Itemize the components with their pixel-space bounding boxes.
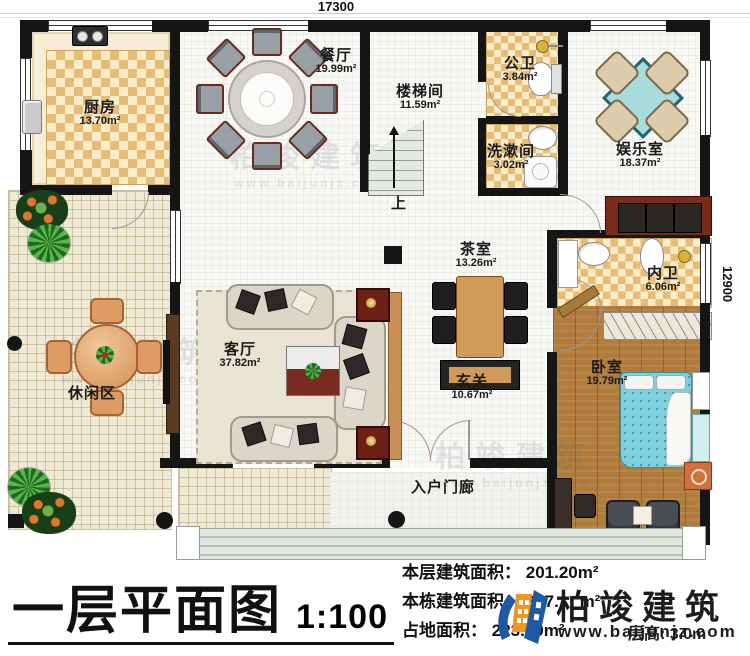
title-scale: 1:100 [296,598,388,636]
window [700,60,711,137]
patio-chair-icon [90,390,124,416]
couch-cushion [646,203,674,233]
fixture-line [547,45,563,47]
dimension-line [0,13,750,14]
couch [605,196,712,236]
column-dot [388,511,405,528]
bed-blanket [666,392,691,466]
wall [478,188,568,196]
wall [486,116,560,124]
desk-chair-icon [574,494,596,518]
tea-chair-icon [432,282,456,310]
porch-post [176,526,200,560]
tv-icon [163,340,170,404]
wall [152,20,208,32]
dining-chair-icon [252,28,282,56]
bed-pillow [624,375,654,390]
dimension-line [0,17,750,18]
title-underline [8,642,394,645]
stat-label: 占地面积： [402,621,487,640]
patio-chair-icon [46,340,72,374]
corner-cabinet [356,288,390,322]
sofa-pillow [342,386,366,410]
logo-website: www.baijunjz.com [558,622,737,642]
column-dot [7,336,22,351]
dining-chair-icon [252,142,282,170]
tea-bench [440,360,520,390]
speaker-cone-icon [691,469,707,485]
entry-door-leaf [468,420,470,460]
dining-table-center [259,91,275,107]
wall [20,20,32,58]
right-dimension: 12900 [720,266,735,302]
wall [470,458,547,468]
tea-chair-icon [504,316,528,344]
tea-table [456,276,504,358]
tea-bench-seat [449,367,511,383]
tea-chair-icon [432,316,456,344]
bed-pillow [656,375,686,390]
window [700,243,711,305]
leisure-floor [178,467,332,530]
corner-cabinet [356,426,390,460]
basin-icon [578,242,610,266]
wardrobe [603,312,712,340]
logo-icon-svg [492,582,550,648]
stairs-arrow [393,134,395,188]
burner-icon [77,31,88,42]
porch-steps [198,528,684,560]
logo-icon [492,582,550,648]
dining-chair-icon [196,84,224,114]
drawing-title: 一层平面图1:100 [12,568,388,643]
plant-icon [28,224,70,262]
flower-dot-icon [102,352,108,358]
window [170,210,181,284]
wall [478,20,486,82]
wall [170,20,180,195]
stove-icon [72,26,108,46]
washer-drum-icon [532,163,549,180]
kitchen-sink-icon [22,100,42,134]
wall [170,190,180,210]
patio-chair-icon [136,340,162,374]
plant-icon [22,492,76,534]
coffee-table [286,346,340,396]
porch-post [682,526,706,560]
sofa-pillow [297,423,320,446]
couch-cushion [674,203,702,233]
wall [547,230,557,308]
burner-icon [92,31,103,42]
top-dimension: 17300 [300,0,372,14]
side-table [633,506,652,525]
porch-floor [330,472,547,528]
dining-chair-icon [310,84,338,114]
toilet-icon [640,238,664,274]
console-table [388,292,402,460]
kitchen-tile [46,50,170,185]
stairs-arrow-head [389,126,399,135]
washing-machine-icon [524,156,557,188]
wall [478,118,486,188]
company-logo: 柏竣建筑 www.baijunjz.com [492,580,748,654]
title-text: 一层平面图 [12,582,282,640]
window [590,20,668,31]
shelf [692,414,710,462]
patio-plant-icon [96,346,114,364]
toilet-tank [551,64,562,94]
patio-chair-icon [90,298,124,324]
column-marker [384,246,402,264]
tea-chair-icon [504,282,528,310]
floor-plan-page: 17300 12900 柏竣建筑 www.baijunjz.com 柏竣建筑 w… [0,0,750,656]
sofa-pillow [264,288,288,312]
column-dot [156,512,173,529]
light-fixture-icon [678,250,691,263]
wall [700,20,710,60]
vanity-counter [558,240,578,288]
plant-icon [305,363,321,379]
cabinet-star-icon [366,436,376,446]
cabinet-star-icon [366,298,376,308]
couch-cushion [618,203,646,233]
basin-icon [528,126,557,150]
wall [308,20,590,32]
speaker-icon [684,462,712,490]
nightstand [692,372,710,410]
